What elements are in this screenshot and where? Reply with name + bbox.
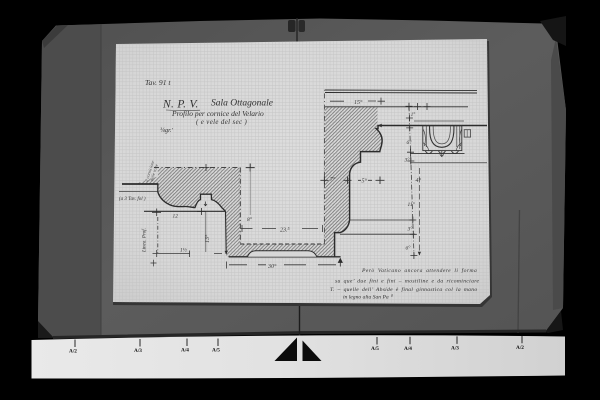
svg-text:A/3: A/3 [134, 348, 142, 354]
svg-text:1½: 1½ [180, 247, 187, 254]
svg-text:5°: 5° [362, 178, 368, 185]
svg-text:1°: 1° [411, 113, 416, 118]
svg-text:A/4: A/4 [404, 346, 412, 352]
svg-text:(a 3 Tav. fol ): (a 3 Tav. fol ) [119, 197, 146, 202]
svg-text:Però Vaticano ancora attendere: Però Vaticano ancora attendere li forma [361, 267, 477, 274]
svg-text:8°: 8° [247, 216, 253, 223]
svg-text:A/5: A/5 [212, 348, 220, 354]
svg-text:15°: 15° [354, 99, 363, 106]
svg-text:in legno alta San Pa ⁰: in legno alta San Pa ⁰ [343, 293, 393, 300]
svg-text:Profilo per cornice del Velari: Profilo per cornice del Velario [171, 109, 264, 118]
svg-text:11°: 11° [408, 201, 416, 208]
svg-text:4°: 4° [416, 177, 422, 184]
svg-text:Linea. Prof.: Linea. Prof. [143, 228, 148, 253]
svg-text:3°: 3° [407, 226, 414, 233]
svg-text:Sala Ottagonale: Sala Ottagonale [211, 99, 273, 109]
svg-text:A/5: A/5 [371, 346, 379, 352]
svg-text:su que’ due fini e fini – most: su que’ due fini e fini – mostiline e da… [335, 278, 480, 285]
svg-text:( e vele del sec ): ( e vele del sec ) [196, 119, 247, 126]
svg-text:30°: 30° [267, 263, 277, 270]
svg-text:A/3: A/3 [451, 345, 459, 351]
svg-text:6°: 6° [407, 139, 413, 146]
svg-text:A/2: A/2 [516, 345, 524, 351]
svg-text:A/2: A/2 [69, 349, 77, 355]
svg-text:A/4: A/4 [181, 348, 189, 354]
svg-text:12: 12 [173, 214, 179, 220]
svg-text:Tav. 91 t: Tav. 91 t [145, 78, 171, 87]
svg-text:3°: 3° [404, 157, 411, 164]
svg-text:¼gr.ʹ: ¼gr.ʹ [160, 127, 174, 134]
svg-text:7°: 7° [330, 176, 336, 183]
svg-text:13°: 13° [204, 234, 211, 243]
svg-text:6°: 6° [406, 245, 412, 252]
svg-text:T. – quelle dell’ Abside è fin: T. – quelle dell’ Abside è final ginnast… [330, 286, 477, 293]
